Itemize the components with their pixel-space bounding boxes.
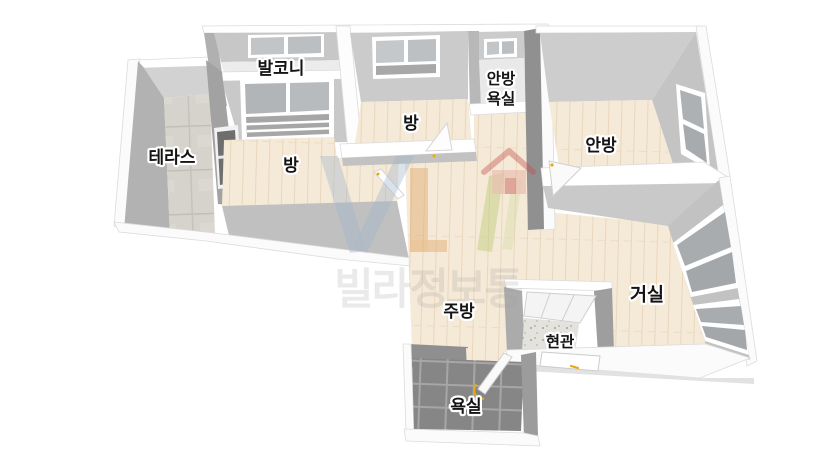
master-bedroom-group (536, 26, 730, 226)
left-room-door-handle (377, 173, 380, 176)
bathroom-south-wall-top (404, 429, 540, 446)
label-entrance: 현관 (546, 332, 575, 351)
bathroom-east-wall-face (521, 352, 538, 438)
south-exterior-wall-group (506, 344, 754, 384)
label-kitchen: 주방 (443, 302, 475, 321)
middle-room-door-handle (432, 154, 435, 157)
bathroom-tile-floor (412, 358, 524, 431)
living-window-pane (696, 306, 744, 325)
entrance-shoe-cabinet (524, 292, 596, 323)
logo-l-bar (410, 168, 428, 252)
left-room-window-lower-rail (246, 114, 329, 137)
label-master-bath-2: 욕실 (487, 90, 516, 108)
middle-room-window-pane (376, 40, 404, 63)
label-balcony: 발코니 (258, 59, 305, 78)
middle-room-window-pane (408, 39, 436, 62)
floorplan-canvas: 빌라정보통 발코니 테라스 방 방 안방 욕실 안방 거실 주방 현관 욕실 (0, 0, 840, 472)
label-bathroom: 욕실 (450, 397, 481, 416)
left-room-window (240, 77, 334, 141)
master-door-handle (550, 163, 553, 166)
label-room-top: 방 (403, 114, 419, 133)
label-room-left: 방 (283, 156, 299, 175)
balcony-window-pane (251, 37, 284, 55)
balcony-north-wall-top (202, 25, 350, 33)
balcony-window-pane (288, 36, 321, 54)
middle-room-window (372, 35, 440, 79)
label-master-bedroom: 안방 (585, 136, 617, 155)
master-bath-window-pane (502, 41, 514, 54)
entrance-east-wall-face (594, 288, 614, 354)
logo-house-door (505, 178, 516, 194)
master-bath-window-pane (487, 42, 499, 56)
left-room-window-pane (245, 83, 286, 114)
logo-l-foot (410, 240, 447, 252)
floorplan-svg: 빌라정보통 발코니 테라스 방 방 안방 욕실 안방 거실 주방 현관 욕실 (0, 0, 840, 472)
watermark-text: 빌라정보통 (334, 266, 522, 314)
balcony-window (248, 34, 324, 58)
left-room-window-pane (290, 82, 329, 112)
master-bath-window (484, 38, 517, 58)
label-master-bath-1: 안방 (487, 70, 516, 88)
label-living-room: 거실 (630, 284, 664, 305)
terrace-group (114, 57, 215, 236)
master-north-wall-top (536, 26, 702, 33)
label-terrace: 테라스 (149, 148, 196, 167)
